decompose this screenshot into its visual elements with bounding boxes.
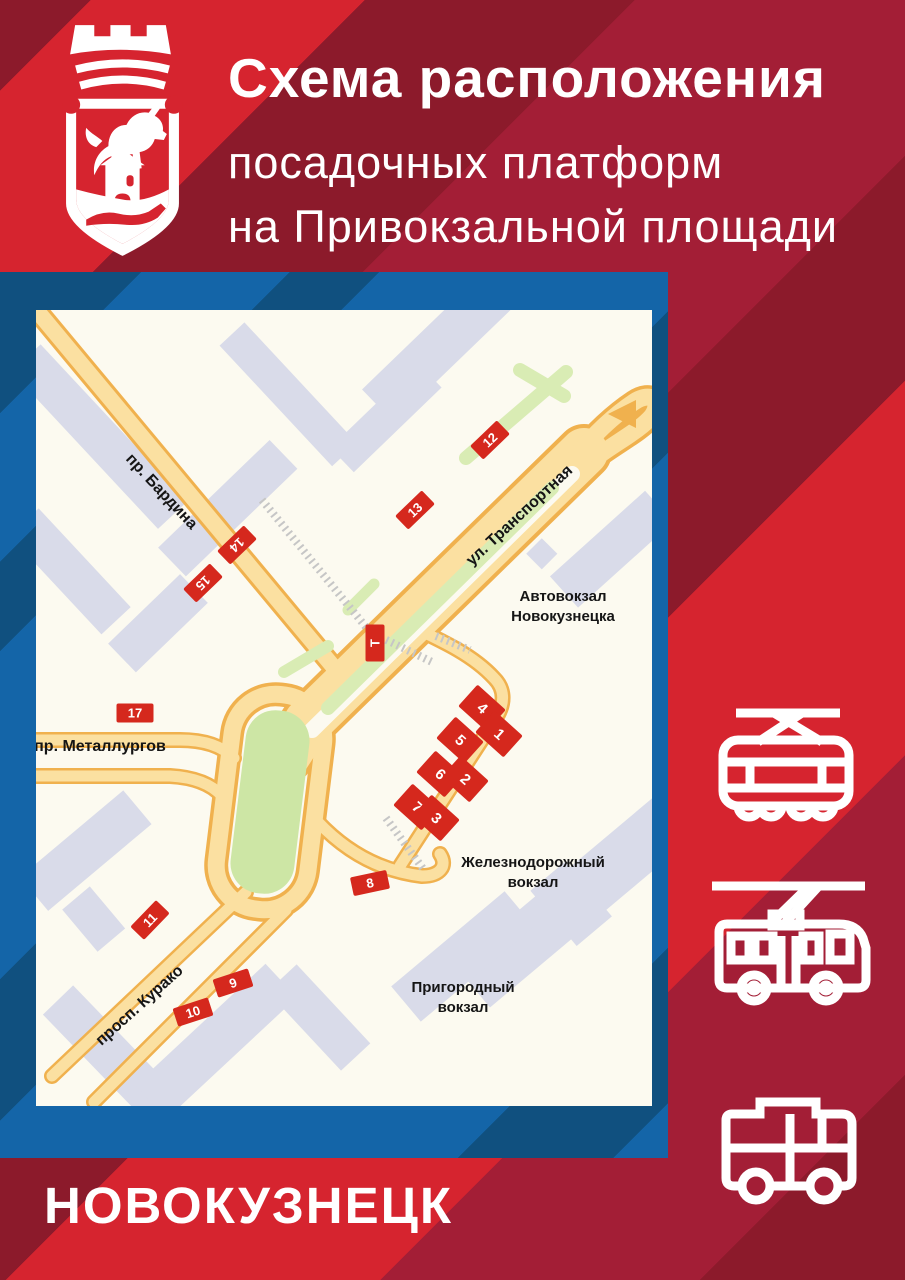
poi-label: АвтовокзалНовокузнецка (511, 587, 615, 628)
route-marker-8: 8 (350, 870, 390, 896)
route-marker-12: 12 (470, 420, 510, 459)
route-marker-13: 13 (395, 490, 435, 529)
route-marker-Т: Т (366, 625, 385, 662)
trolleybus-icon (706, 874, 871, 1032)
route-marker-17: 17 (117, 704, 154, 723)
bus-icon (712, 1084, 867, 1224)
poi-label: Железнодорожныйвокзал (461, 853, 605, 894)
map-frame: пр. Бардинаул. Транспортнаяпр. Металлург… (0, 272, 668, 1158)
title-line-2: посадочных платформ (228, 134, 838, 193)
poster: Схема расположения посадочных платформ н… (0, 0, 905, 1280)
title-line-1: Схема расположения (228, 50, 838, 108)
route-marker-15: 15 (183, 563, 223, 602)
city-coat-of-arms-icon (40, 12, 205, 264)
city-name: НОВОКУЗНЕЦК (44, 1176, 453, 1235)
map-overlay: пр. Бардинаул. Транспортнаяпр. Металлург… (36, 310, 652, 1106)
map-canvas: пр. Бардинаул. Транспортнаяпр. Металлург… (36, 310, 652, 1106)
street-label: ул. Транспортная (463, 462, 577, 570)
route-marker-11: 11 (130, 900, 169, 940)
street-label: пр. Бардина (121, 451, 200, 534)
title-line-3: на Привокзальной площади (228, 198, 838, 257)
tram-icon (706, 700, 866, 850)
poster-title: Схема расположения посадочных платформ н… (228, 50, 838, 257)
route-marker-10: 10 (172, 997, 213, 1027)
street-label: просп. Курако (93, 962, 188, 1050)
poi-label: Пригородныйвокзал (411, 978, 514, 1019)
route-marker-9: 9 (212, 968, 253, 998)
street-label: пр. Металлургов (36, 738, 166, 756)
route-marker-14: 14 (217, 525, 257, 564)
